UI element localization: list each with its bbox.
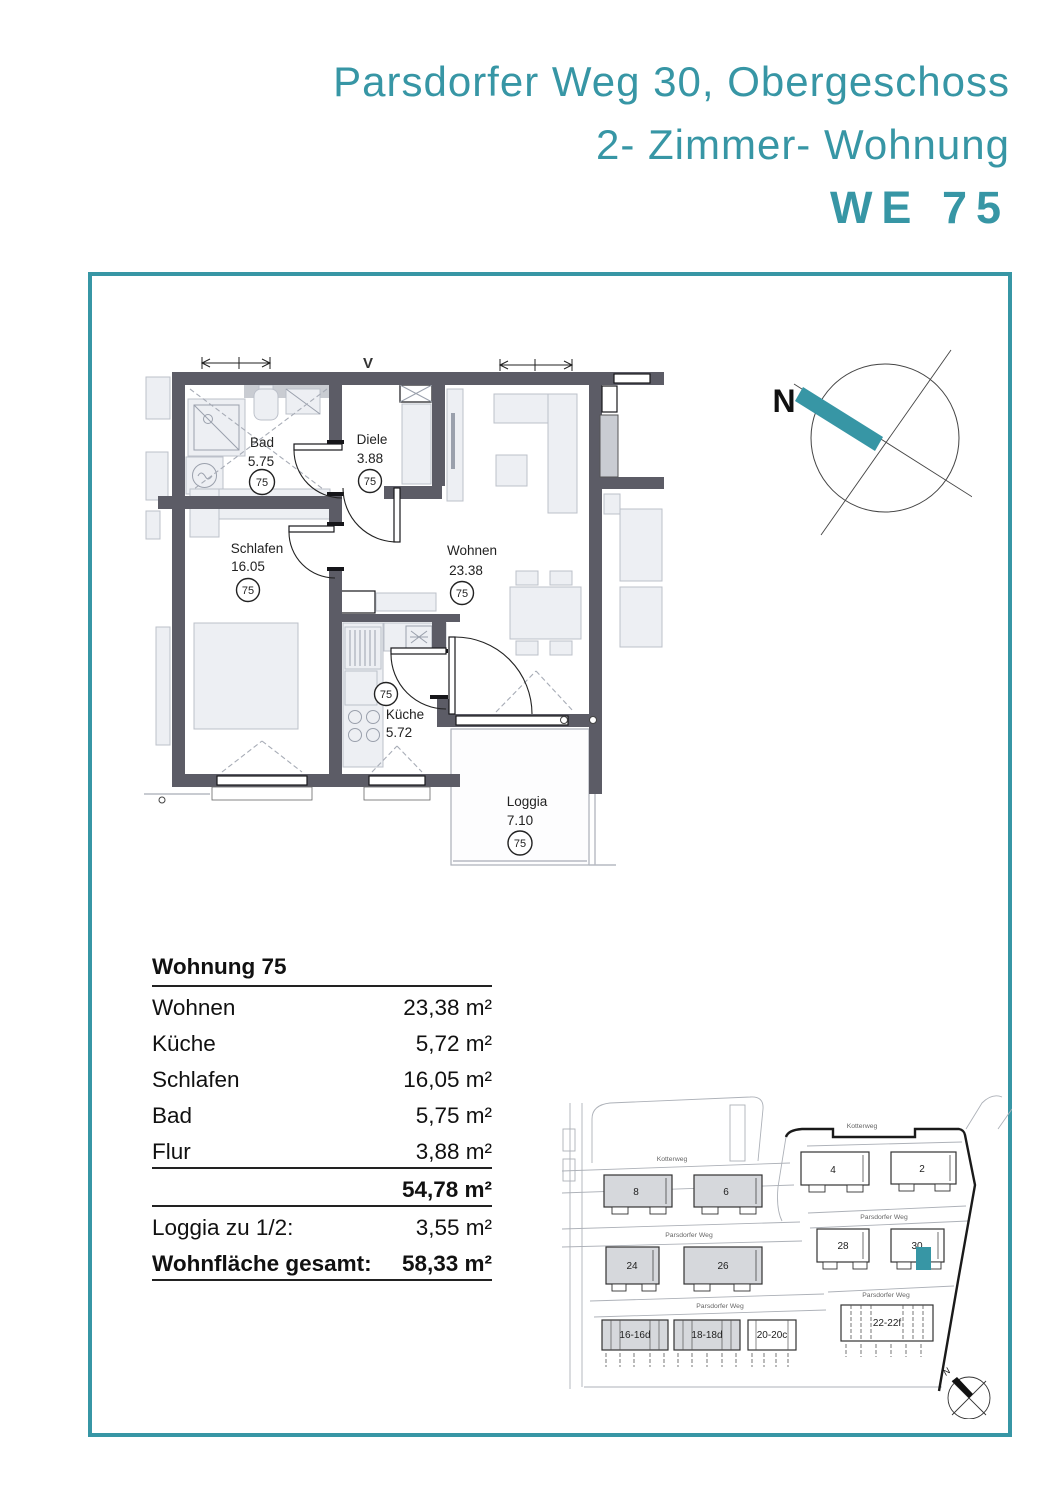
north-compass: N [642, 336, 972, 556]
street-label: Parsdorfer Weg [665, 1232, 713, 1239]
site-compass: N [941, 1365, 990, 1419]
room-area-loggia: 7.10 [507, 813, 533, 828]
title-unit-number: WE 75 [333, 176, 1010, 240]
table-row: Küche 5,72 m² [152, 1023, 492, 1059]
table-row: Wohnen 23,38 m² [152, 987, 492, 1023]
north-arrow-bar [795, 387, 883, 451]
svg-text:75: 75 [364, 476, 376, 488]
svg-text:75: 75 [380, 689, 392, 701]
area-table: Wohnung 75 Wohnen 23,38 m² Küche 5,72 m²… [152, 954, 492, 1281]
drawing-frame: V Bad 5.75 75 Diele 3.88 75 Schlafen 16.… [88, 272, 1012, 1437]
svg-text:75: 75 [456, 588, 468, 600]
table-loggia-row: Loggia zu 1/2: 3,55 m² [152, 1207, 492, 1243]
parking-label: 20-20c [757, 1330, 788, 1341]
street-label: Kotterweg [847, 1123, 878, 1130]
area-table-title: Wohnung 75 [152, 954, 492, 987]
section-marker: V [363, 355, 373, 372]
room-label-bad: Bad [250, 435, 274, 450]
building-label: 26 [717, 1261, 729, 1272]
svg-text:75: 75 [514, 838, 526, 850]
street-label: Parsdorfer Weg [860, 1214, 908, 1221]
floorplan-sheet: { "colors": {"accent": "#3796A5", "wall_… [0, 0, 1060, 1500]
table-subtotal-row: 54,78 m² [152, 1169, 492, 1207]
building-label: 28 [837, 1241, 849, 1252]
room-label-diele: Diele [357, 432, 388, 447]
table-total-row: Wohnfläche gesamt: 58,33 m² [152, 1243, 492, 1281]
svg-text:75: 75 [242, 585, 254, 597]
room-label-wohnen: Wohnen [447, 543, 497, 558]
room-area-wohnen: 23.38 [449, 563, 483, 578]
parking-label: 16-16d [619, 1330, 650, 1341]
north-label: N [772, 383, 795, 419]
svg-text:75: 75 [256, 477, 268, 489]
table-row: Flur 3,88 m² [152, 1131, 492, 1169]
title-address: Parsdorfer Weg 30, Obergeschoss [333, 50, 1010, 113]
street-label: Kotterweg [657, 1156, 688, 1163]
street-label: Parsdorfer Weg [862, 1292, 910, 1299]
site-parking: 16-16d 18-18d 20-20c [602, 1305, 933, 1367]
room-area-bad: 5.75 [248, 454, 274, 469]
room-label-loggia: Loggia [507, 794, 548, 809]
title-apartment-type: 2- Zimmer- Wohnung [333, 113, 1010, 176]
building-label: 4 [830, 1165, 836, 1176]
building-label: 6 [723, 1187, 729, 1198]
room-area-schlafen: 16.05 [231, 559, 265, 574]
table-row: Bad 5,75 m² [152, 1095, 492, 1131]
page-title: Parsdorfer Weg 30, Obergeschoss 2- Zimme… [333, 50, 1010, 240]
building-label: 24 [626, 1261, 638, 1272]
dimension-marks [202, 357, 572, 371]
street-label: Parsdorfer Weg [696, 1303, 744, 1310]
hallway-closet [400, 385, 432, 484]
parking-label: 18-18d [691, 1330, 722, 1341]
room-label-schlafen: Schlafen [231, 541, 284, 556]
room-area-diele: 3.88 [357, 451, 383, 466]
bedroom-furniture [190, 489, 330, 729]
table-row: Schlafen 16,05 m² [152, 1059, 492, 1095]
highlighted-unit-marker [916, 1247, 931, 1270]
subtotal-value: 54,78 m² [402, 1177, 492, 1203]
building-label: 8 [633, 1187, 639, 1198]
living-room-furniture [447, 389, 581, 655]
floor-plan: V Bad 5.75 75 Diele 3.88 75 Schlafen 16.… [144, 349, 669, 909]
room-area-kueche: 5.72 [386, 725, 412, 740]
room-label-kueche: Küche [386, 707, 424, 722]
parking-label: 22-22f [873, 1318, 902, 1329]
site-plan: Kotterweg Kotterweg Parsdorfer Weg Parsd… [562, 1089, 1012, 1419]
building-label: 2 [919, 1164, 925, 1175]
